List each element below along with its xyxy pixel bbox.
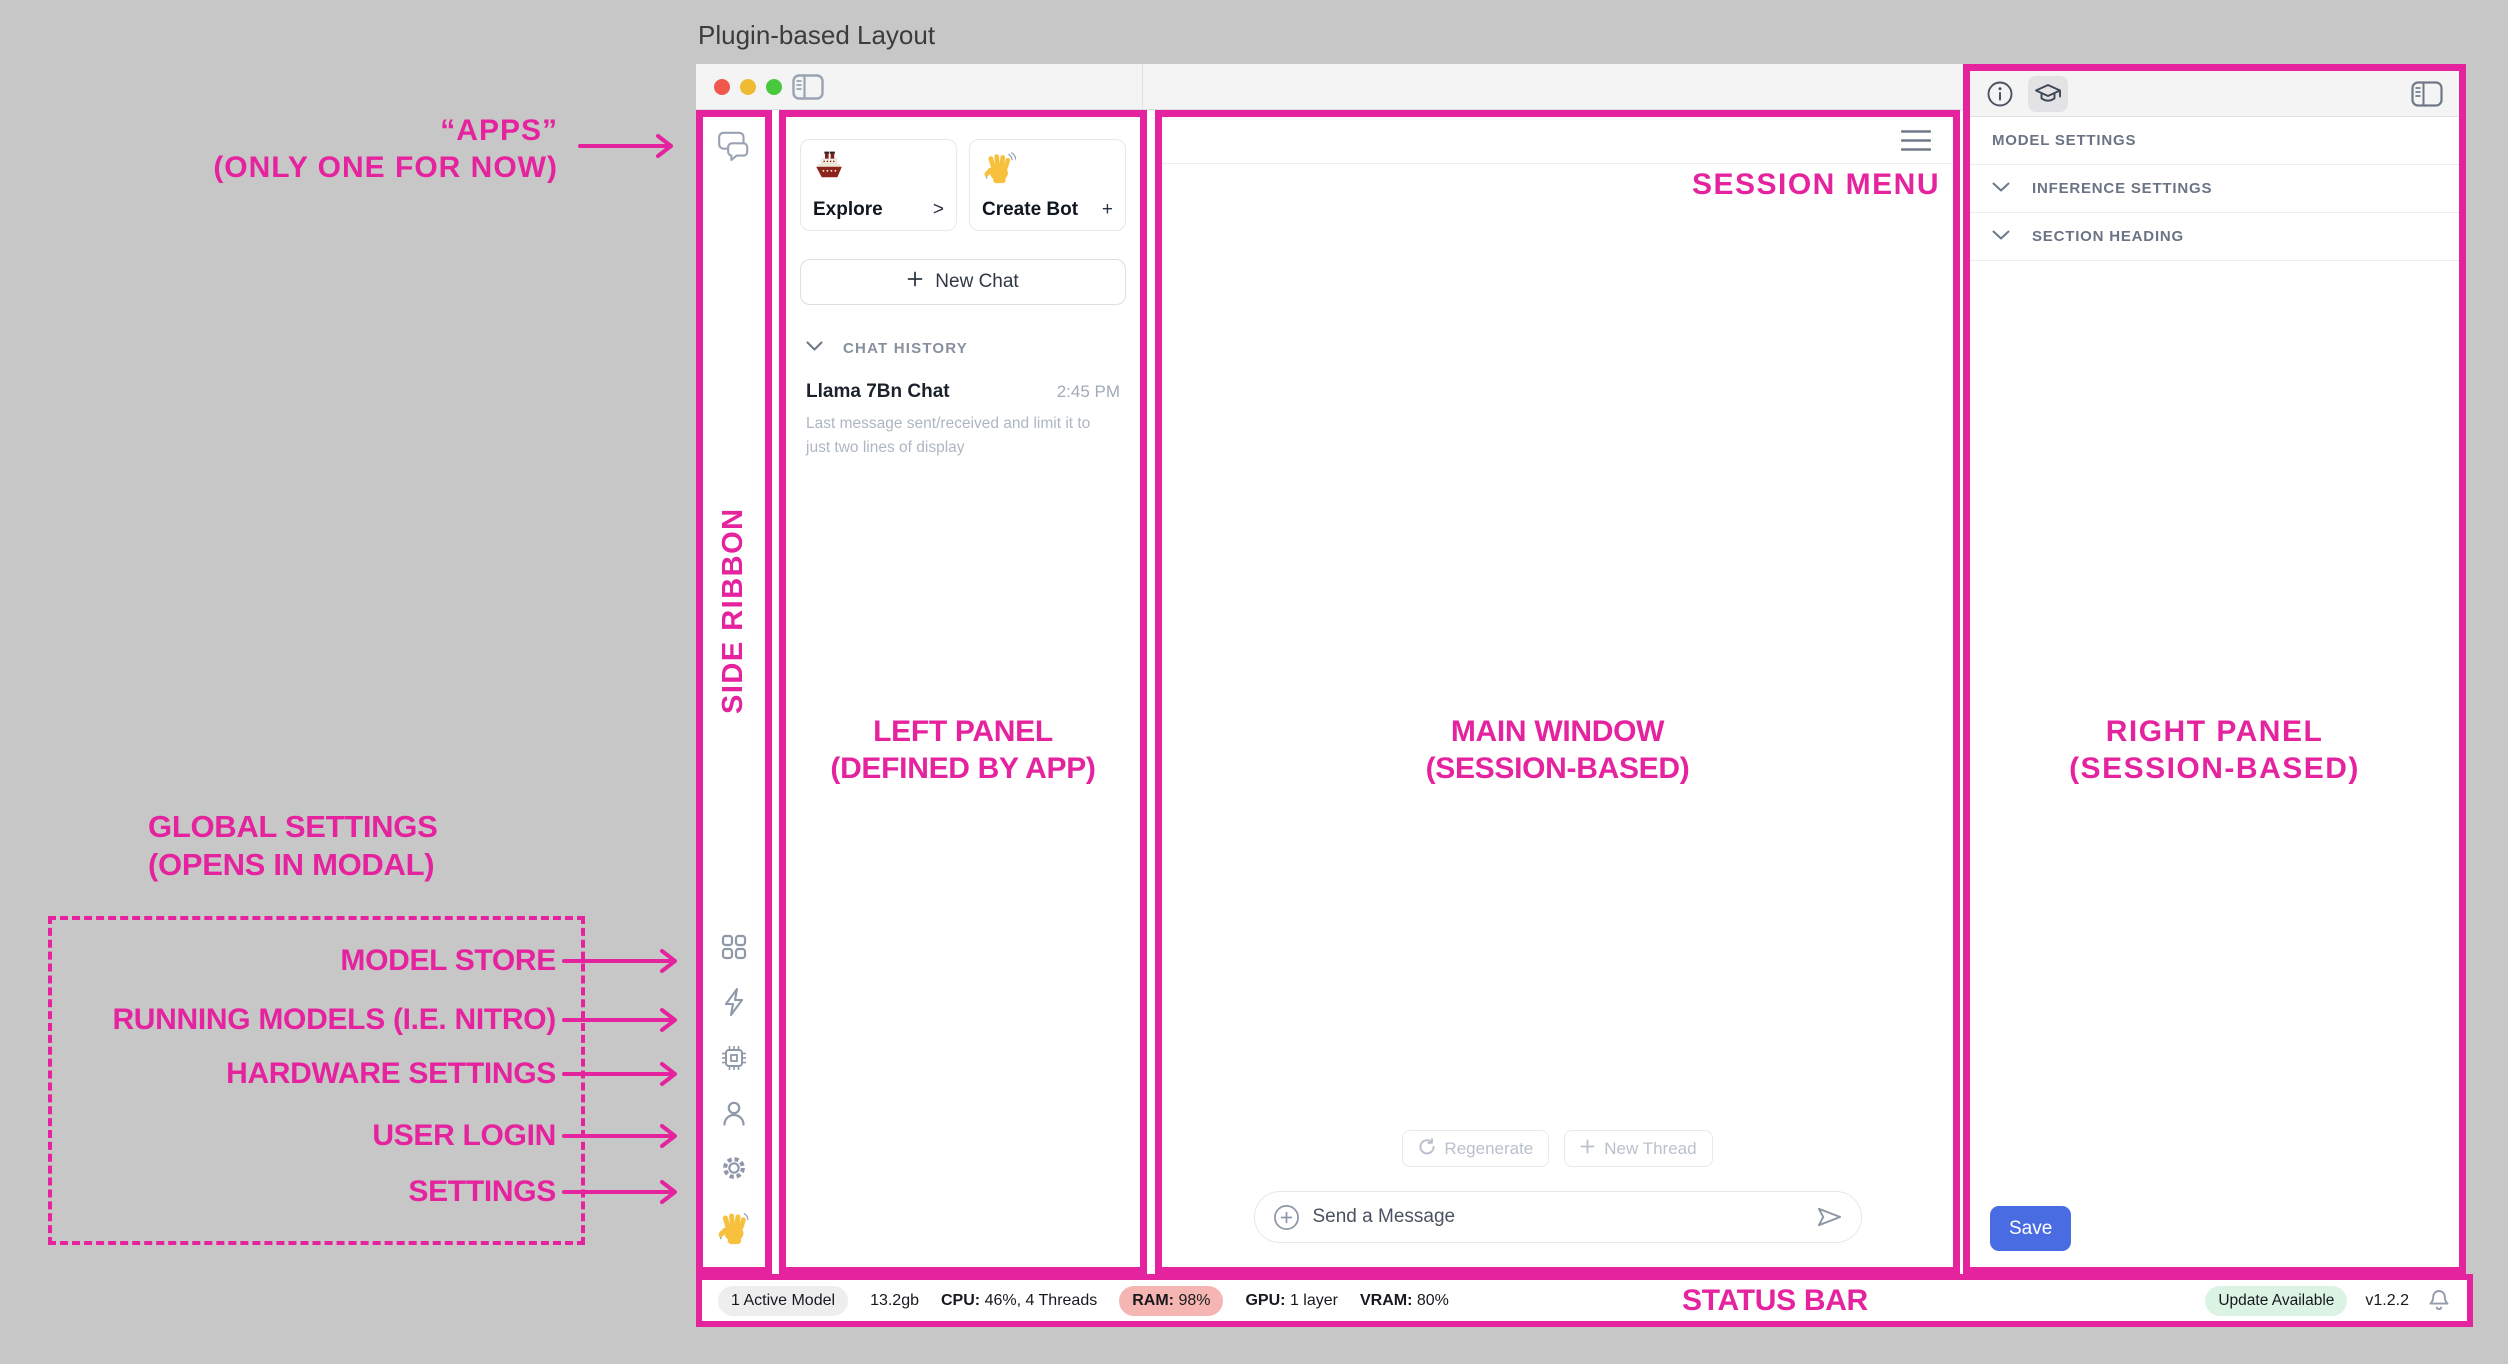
annotation-apps-line2: (ONLY ONE FOR NOW) — [0, 149, 558, 186]
annotation-left-panel: LEFT PANEL (DEFINED BY APP) — [779, 713, 1147, 787]
annotation-arrow-model-store — [562, 946, 694, 976]
annotation-apps: “APPS” (ONLY ONE FOR NOW) — [0, 112, 558, 186]
wave-emoji — [982, 171, 1016, 188]
titlebar — [696, 64, 1963, 110]
attach-plus-icon[interactable] — [1273, 1204, 1300, 1231]
explore-card[interactable]: Explore > — [800, 139, 957, 231]
panel-toggle-icon[interactable] — [2411, 81, 2443, 107]
model-settings-label: MODEL SETTINGS — [1992, 132, 2136, 149]
app-version: v1.2.2 — [2365, 1292, 2409, 1310]
minimize-traffic-light[interactable] — [740, 79, 756, 95]
annotation-arrow-settings — [562, 1177, 694, 1207]
left-panel: Explore > Create Bot + New Chat — [779, 110, 1147, 1274]
annotation-arrow-apps — [578, 131, 690, 161]
status-bar: 1 Active Model 13.2gb CPU: 46%, 4 Thread… — [696, 1274, 2473, 1327]
assistant-cap-icon[interactable] — [2028, 76, 2068, 112]
chevron-down-icon — [806, 339, 823, 357]
annotation-model-store: MODEL STORE — [0, 944, 556, 978]
annotation-status-bar: STATUS BAR — [1610, 1284, 1940, 1318]
annotation-user-login: USER LOGIN — [0, 1119, 556, 1153]
chat-list-item[interactable]: Llama 7Bn Chat 2:45 PM Last message sent… — [800, 381, 1126, 460]
regenerate-button[interactable]: Regenerate — [1402, 1130, 1549, 1167]
save-button[interactable]: Save — [1990, 1206, 2071, 1251]
session-header — [1162, 117, 1953, 164]
user-login-icon[interactable] — [721, 1099, 747, 1127]
annotation-right-panel: RIGHT PANEL (SESSION-BASED) — [1963, 713, 2466, 787]
update-available-badge[interactable]: Update Available — [2205, 1286, 2347, 1316]
annotation-global-settings: GLOBAL SETTINGS (OPENS IN MODAL) — [148, 808, 437, 884]
running-models-bolt-icon[interactable] — [721, 987, 747, 1017]
new-thread-label: New Thread — [1604, 1139, 1696, 1159]
ship-emoji — [813, 169, 845, 186]
plus-icon — [1580, 1139, 1595, 1159]
right-panel: MODEL SETTINGS INFERENCE SETTINGS SECTIO… — [1963, 64, 2466, 1274]
section-heading[interactable]: SECTION HEADING — [1970, 213, 2459, 261]
chat-title: Llama 7Bn Chat — [806, 381, 950, 403]
titlebar-divider — [1142, 64, 1143, 109]
hardware-chip-icon[interactable] — [720, 1044, 748, 1072]
chevron-down-icon — [1992, 228, 2010, 246]
info-icon[interactable] — [1986, 80, 2014, 108]
chat-apps-icon[interactable] — [716, 129, 752, 163]
annotation-settings: SETTINGS — [0, 1175, 556, 1209]
gpu-metric: GPU: 1 layer — [1245, 1292, 1337, 1310]
regenerate-icon — [1418, 1138, 1435, 1160]
explore-card-label: Explore — [813, 199, 883, 221]
notification-bell-icon[interactable] — [2427, 1288, 2451, 1314]
model-store-grid-icon[interactable] — [721, 934, 747, 960]
annotation-arrow-running-models — [562, 1005, 694, 1035]
create-bot-card[interactable]: Create Bot + — [969, 139, 1126, 231]
close-traffic-light[interactable] — [714, 79, 730, 95]
chevron-down-icon — [1992, 180, 2010, 198]
wave-emoji — [716, 1209, 752, 1245]
settings-gear-icon[interactable] — [720, 1154, 748, 1182]
annotation-running-models: RUNNING MODELS (I.E. NITRO) — [0, 1003, 556, 1037]
plus-icon — [907, 271, 923, 293]
session-menu-hamburger-icon[interactable] — [1901, 129, 1931, 152]
annotation-main-window: MAIN WINDOW (SESSION-BASED) — [1155, 713, 1960, 787]
new-chat-button[interactable]: New Chat — [800, 259, 1126, 305]
chat-history-label: CHAT HISTORY — [843, 340, 968, 357]
create-bot-card-plus: + — [1102, 199, 1113, 221]
message-input[interactable] — [1313, 1206, 1803, 1228]
global-settings-group — [716, 934, 752, 1245]
annotation-apps-line1: “APPS” — [0, 112, 558, 149]
cpu-metric: CPU: 46%, 4 Threads — [941, 1292, 1097, 1310]
zoom-traffic-light[interactable] — [766, 79, 782, 95]
message-composer — [1254, 1191, 1862, 1243]
vram-metric: VRAM: 80% — [1360, 1292, 1449, 1310]
chat-timestamp: 2:45 PM — [1057, 382, 1120, 402]
section-inference-settings[interactable]: INFERENCE SETTINGS — [1970, 165, 2459, 213]
ram-metric: RAM: 98% — [1119, 1286, 1223, 1316]
annotation-side-ribbon: SIDE RIBBON — [706, 488, 760, 733]
sidebar-toggle-icon[interactable] — [792, 74, 824, 100]
active-model-badge: 1 Active Model — [718, 1286, 848, 1316]
section-label: SECTION HEADING — [2032, 228, 2184, 245]
regenerate-label: Regenerate — [1444, 1139, 1533, 1159]
explore-card-chevron: > — [933, 199, 944, 221]
new-thread-button[interactable]: New Thread — [1564, 1130, 1712, 1167]
annotation-arrow-hardware-settings — [562, 1059, 694, 1089]
chat-history-header[interactable]: CHAT HISTORY — [800, 339, 1126, 357]
model-settings-header: MODEL SETTINGS — [1970, 117, 2459, 165]
page-title: Plugin-based Layout — [698, 20, 935, 51]
new-chat-label: New Chat — [935, 271, 1018, 293]
create-bot-card-label: Create Bot — [982, 199, 1078, 221]
section-label: INFERENCE SETTINGS — [2032, 180, 2212, 197]
annotation-session-menu: SESSION MENU — [1560, 168, 1940, 202]
main-window: Regenerate New Thread — [1155, 110, 1960, 1274]
annotation-arrow-user-login — [562, 1121, 694, 1151]
annotation-hardware-settings: HARDWARE SETTINGS — [0, 1057, 556, 1091]
memory-usage: 13.2gb — [870, 1292, 919, 1310]
design-canvas: Plugin-based Layout — [0, 0, 2508, 1364]
right-panel-toolbar — [1970, 71, 2459, 117]
chat-preview: Last message sent/received and limit it … — [806, 412, 1120, 460]
send-icon[interactable] — [1816, 1205, 1843, 1229]
